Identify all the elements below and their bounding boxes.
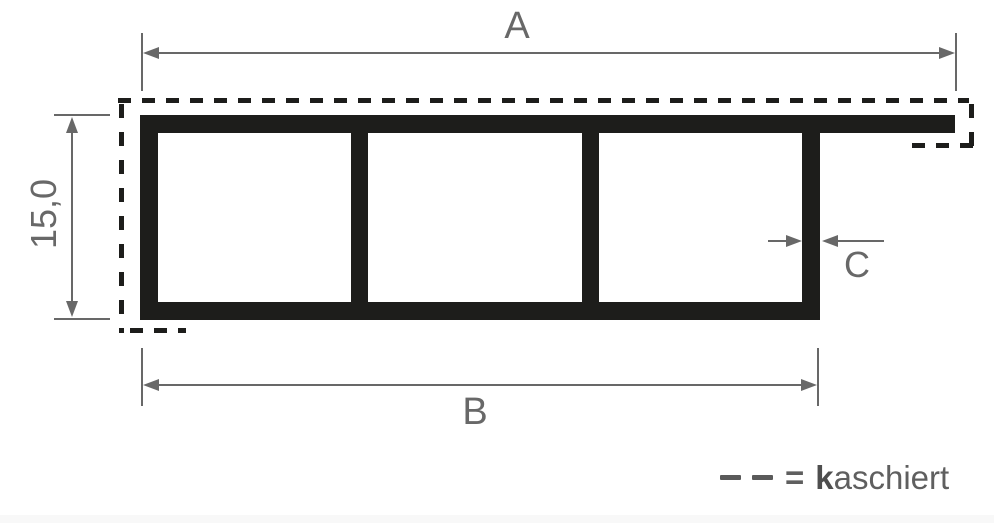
kaschiert-dash-top (118, 98, 969, 103)
legend-term-initial: k (815, 459, 833, 496)
kaschiert-dash-left (119, 104, 124, 333)
dim-h-line (71, 125, 73, 309)
dim-a-arrow-left-icon (143, 47, 159, 59)
dim-a-extension-left (141, 33, 143, 91)
dim-c-line-right (830, 240, 884, 242)
profile-left-wall (140, 115, 158, 320)
legend-dash-icon (752, 475, 773, 480)
legend-term-rest: aschiert (834, 459, 950, 496)
technical-drawing: A 15,0 B C = kaschiert (0, 0, 994, 523)
legend-term: kaschiert (815, 461, 949, 494)
kaschiert-dash-bottom-left (130, 328, 186, 333)
profile-right-wall (802, 115, 820, 320)
dim-b-extension-right (817, 348, 819, 406)
dim-h-label: 15,0 (24, 174, 64, 254)
dim-a-label: A (487, 6, 547, 46)
dim-h-extension-bottom (54, 318, 110, 320)
bottom-edge-strip (0, 515, 994, 523)
profile-divider-2 (582, 133, 599, 302)
dim-c-arrow-right-icon (786, 235, 802, 247)
dim-b-extension-left (141, 348, 143, 406)
dim-b-arrow-right-icon (801, 379, 817, 391)
dim-h-arrow-down-icon (66, 301, 78, 317)
dim-b-label: B (445, 392, 505, 432)
dim-a-arrow-right-icon (939, 47, 955, 59)
dim-h-arrow-up-icon (66, 117, 78, 133)
dim-b-line (150, 384, 810, 386)
legend-kaschiert: = kaschiert (712, 456, 972, 498)
legend-equals: = (785, 461, 805, 494)
dim-h-extension-top (54, 114, 110, 116)
profile-top-flange (140, 115, 955, 133)
profile-divider-1 (351, 133, 368, 302)
dim-a-line (150, 52, 948, 54)
profile-bottom-wall (140, 302, 820, 320)
dim-c-label: C (827, 246, 887, 284)
dim-a-extension-right (955, 33, 957, 91)
kaschiert-dash-under-flange (912, 143, 974, 148)
legend-dash-icon (720, 475, 741, 480)
dim-b-arrow-left-icon (143, 379, 159, 391)
